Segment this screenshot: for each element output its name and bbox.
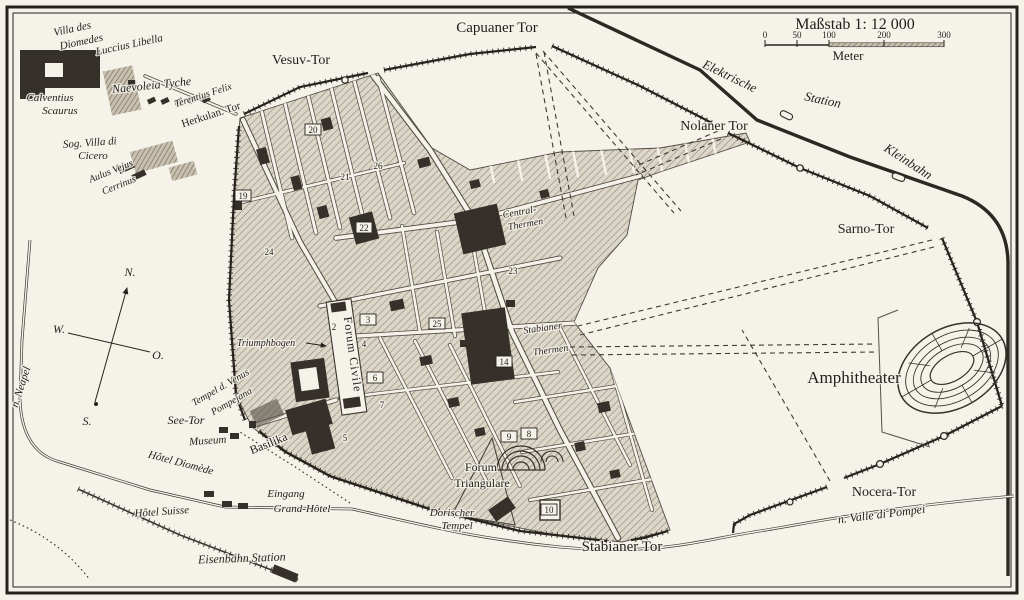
grand-hotel-building bbox=[222, 501, 232, 507]
marker-number-3: 3 bbox=[366, 315, 371, 325]
marker-number-21: 21 bbox=[341, 172, 350, 182]
scale-tick-label: 200 bbox=[877, 30, 891, 40]
label-grand-hotel: Grand-Hôtel bbox=[274, 503, 331, 515]
marker-number-5: 5 bbox=[343, 433, 348, 443]
scale-tick-label: 50 bbox=[793, 30, 803, 40]
label-stabianer-tor: Stabianer Tor bbox=[582, 539, 663, 555]
label-capuaner-tor: Capuaner Tor bbox=[456, 20, 538, 36]
see-tor-gatehouse bbox=[249, 421, 256, 428]
marker-number-22: 22 bbox=[360, 223, 369, 233]
marker-number-2: 2 bbox=[332, 322, 337, 332]
marker-number-24: 24 bbox=[265, 247, 275, 257]
label-nolaner-tor: Nolaner Tor bbox=[680, 119, 748, 134]
marker-number-10: 10 bbox=[545, 505, 555, 515]
museum-building bbox=[219, 427, 228, 433]
label-see-tor: See-Tor bbox=[168, 413, 205, 427]
compass-south: S. bbox=[83, 414, 92, 428]
marker-number-6: 6 bbox=[373, 373, 378, 383]
marker-number-7: 7 bbox=[380, 400, 385, 410]
compass-east: O. bbox=[152, 348, 164, 362]
label-sarno-tor: Sarno-Tor bbox=[838, 222, 895, 237]
scale-tick-label: 0 bbox=[763, 30, 768, 40]
label-triumphbogen: Triumphbogen bbox=[237, 338, 295, 349]
label-dorischer-tempel-2: Tempel bbox=[441, 520, 472, 532]
label-eingang: Eingang bbox=[266, 488, 305, 500]
compass-west: W. bbox=[53, 322, 65, 336]
scale-tick-label: 300 bbox=[937, 30, 951, 40]
marker-number-25: 25 bbox=[433, 319, 443, 329]
label-scaurus: Scaurus bbox=[42, 105, 77, 117]
marker-number-14: 14 bbox=[500, 357, 510, 367]
marker-number-26: 26 bbox=[374, 161, 384, 171]
label-calventius: Calventius bbox=[26, 92, 73, 104]
marker-number-19: 19 bbox=[239, 191, 249, 201]
scale-unit: Meter bbox=[832, 48, 864, 63]
marker-number-4: 4 bbox=[362, 339, 367, 349]
marker-number-20: 20 bbox=[309, 125, 319, 135]
marker-number-23: 23 bbox=[509, 266, 519, 276]
pompeii-map: N. W. O. S. Maßstab 1: 12 000 0501002003… bbox=[0, 0, 1024, 600]
label-forum-triangulare-2: Triangulare bbox=[454, 476, 510, 490]
label-dorischer-tempel: Dorischer bbox=[429, 507, 475, 519]
label-amphitheater: Amphitheater bbox=[807, 368, 901, 387]
compass-north: N. bbox=[123, 265, 135, 279]
label-nocera-tor: Nocera-Tor bbox=[852, 485, 917, 500]
label-vesuv-tor: Vesuv-Tor bbox=[272, 53, 330, 68]
scale-tick-label: 100 bbox=[822, 30, 836, 40]
scale-title: Maßstab 1: 12 000 bbox=[795, 16, 915, 33]
label-forum-triangulare: Forum bbox=[465, 460, 498, 474]
label-cicero: Cicero bbox=[78, 150, 108, 162]
marker-number-9: 9 bbox=[507, 432, 512, 442]
marker-number-8: 8 bbox=[527, 429, 532, 439]
